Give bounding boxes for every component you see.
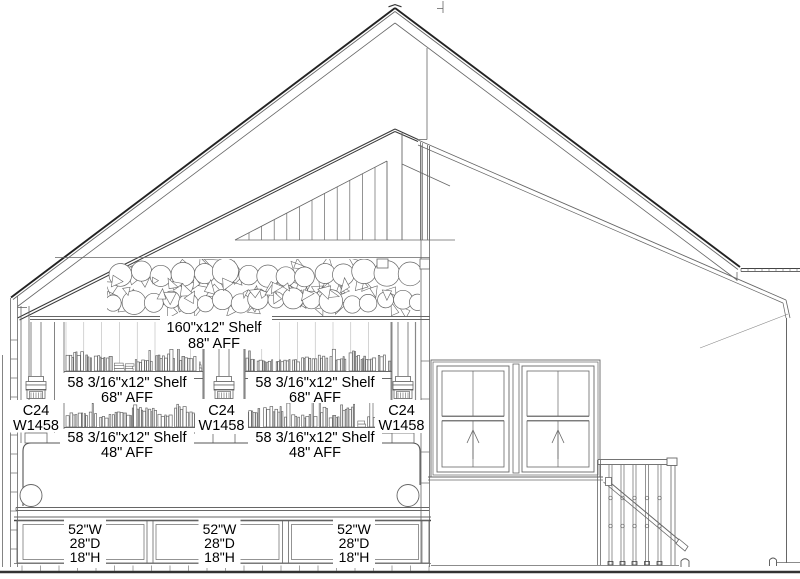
svg-text:C24: C24: [388, 403, 415, 419]
svg-text:88" AFF: 88" AFF: [188, 336, 240, 352]
svg-text:68" AFF: 68" AFF: [289, 390, 341, 406]
svg-text:48" AFF: 48" AFF: [101, 445, 153, 461]
svg-text:C24: C24: [23, 403, 50, 419]
svg-text:W1458: W1458: [379, 418, 425, 434]
svg-text:160"x12" Shelf: 160"x12" Shelf: [167, 320, 263, 336]
svg-text:68" AFF: 68" AFF: [101, 390, 153, 406]
svg-text:C24: C24: [208, 403, 235, 419]
svg-text:W1458: W1458: [199, 418, 245, 434]
svg-text:58 3/16"x12" Shelf: 58 3/16"x12" Shelf: [67, 375, 187, 391]
svg-text:18"H: 18"H: [70, 549, 101, 565]
svg-text:48" AFF: 48" AFF: [289, 445, 341, 461]
svg-text:W1458: W1458: [13, 418, 59, 434]
svg-text:58 3/16"x12" Shelf: 58 3/16"x12" Shelf: [67, 430, 187, 446]
svg-text:18"H: 18"H: [204, 549, 235, 565]
svg-text:18"H: 18"H: [339, 549, 370, 565]
svg-text:58 3/16"x12" Shelf: 58 3/16"x12" Shelf: [255, 375, 375, 391]
svg-text:58 3/16"x12" Shelf: 58 3/16"x12" Shelf: [255, 430, 375, 446]
